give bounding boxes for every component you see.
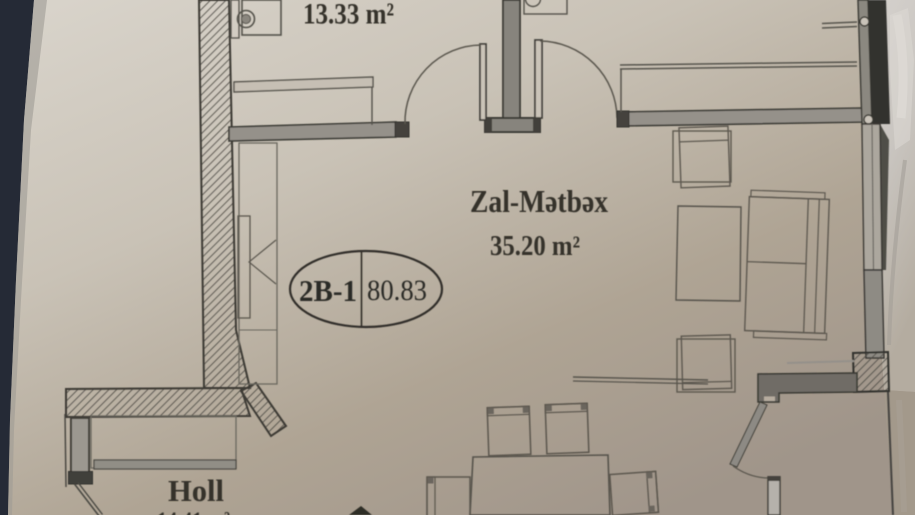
svg-text:Zal-Mətbəx: Zal-Mətbəx bbox=[470, 183, 608, 219]
svg-text:80.83: 80.83 bbox=[367, 274, 427, 307]
svg-text:Holl: Holl bbox=[168, 473, 224, 508]
svg-text:2B-1: 2B-1 bbox=[299, 273, 357, 308]
svg-text:14.41 m²: 14.41 m² bbox=[157, 508, 230, 515]
svg-text:13.33 m²: 13.33 m² bbox=[303, 0, 394, 31]
svg-text:35.20 m²: 35.20 m² bbox=[490, 231, 580, 262]
